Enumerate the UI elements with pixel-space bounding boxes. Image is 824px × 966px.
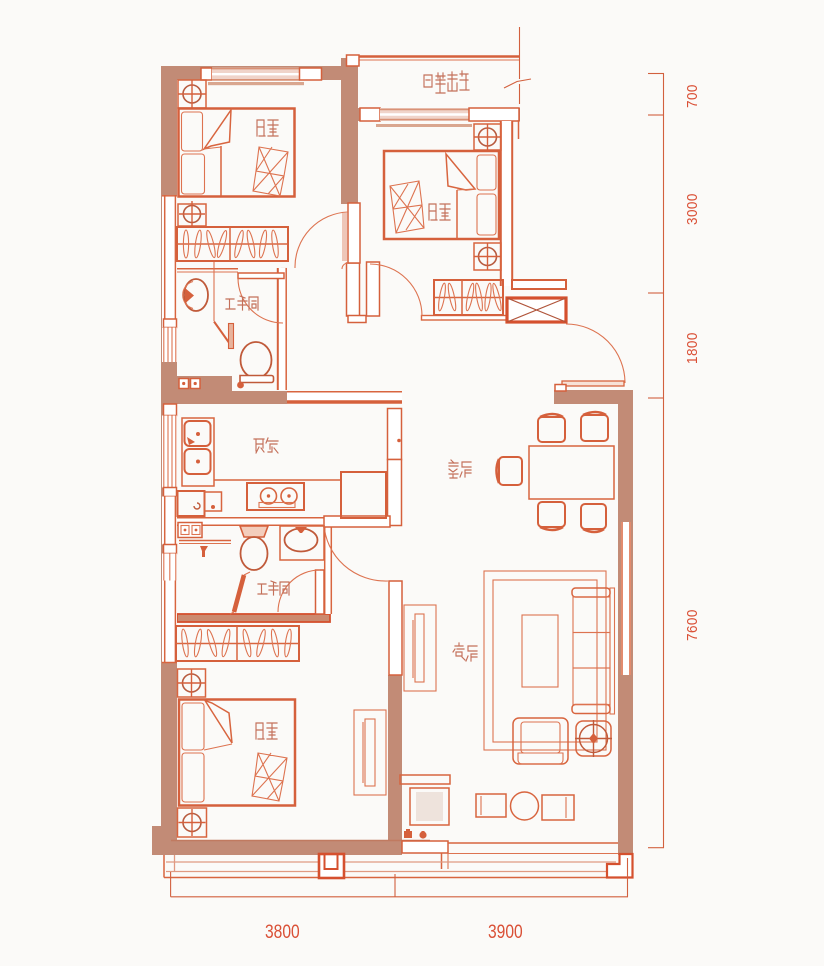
svg-text:700: 700 <box>684 84 701 108</box>
svg-text:3000: 3000 <box>684 193 701 225</box>
svg-text:7600: 7600 <box>684 609 701 641</box>
svg-text:1800: 1800 <box>684 332 701 364</box>
svg-text:3800: 3800 <box>265 921 300 943</box>
svg-text:3900: 3900 <box>488 921 523 943</box>
